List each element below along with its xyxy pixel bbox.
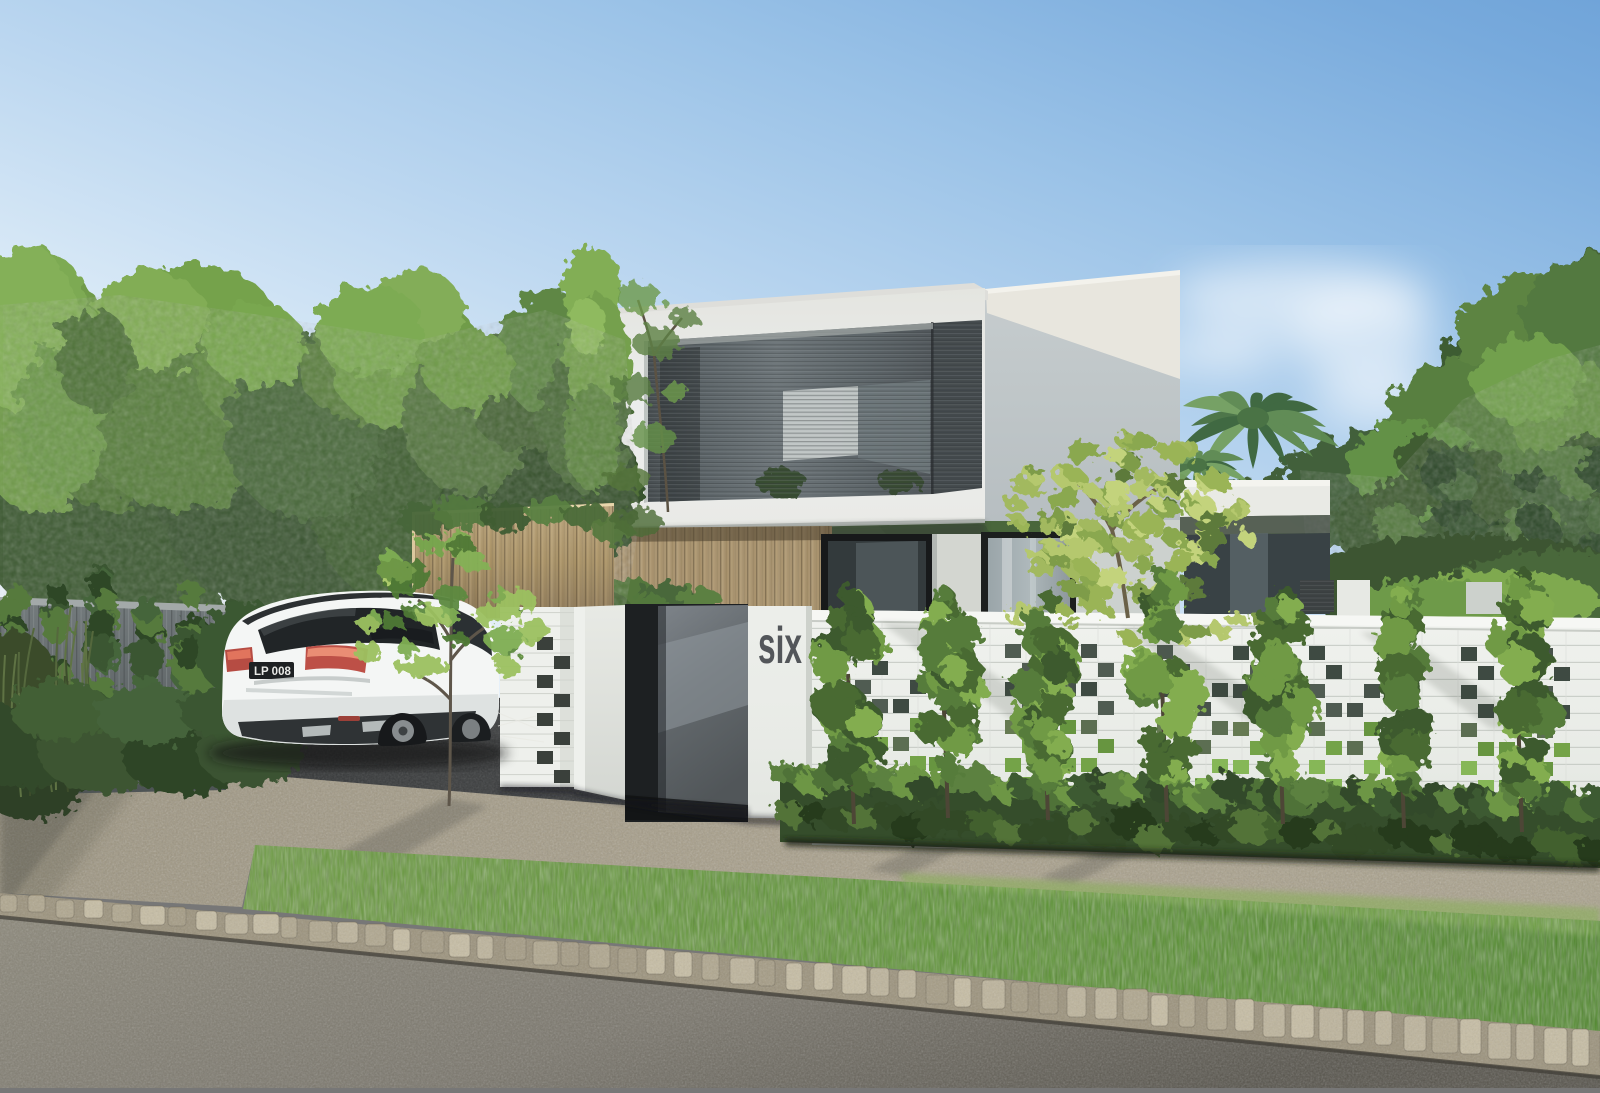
svg-text:LP 008: LP 008	[254, 666, 291, 678]
svg-text:six: six	[758, 617, 802, 675]
